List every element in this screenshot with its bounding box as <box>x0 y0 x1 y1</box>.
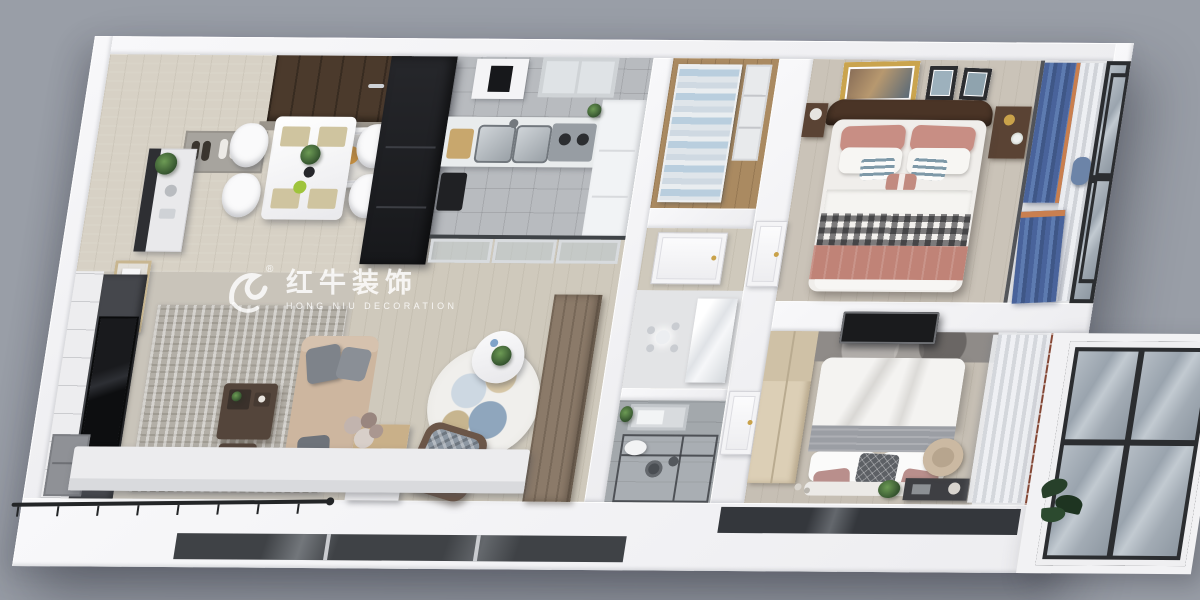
blanket-fold <box>813 279 956 290</box>
glass-bar <box>672 437 684 501</box>
kitchen-counter <box>441 117 603 168</box>
wall-art-small <box>925 66 958 100</box>
room-entry-dining <box>76 54 400 273</box>
slipper <box>218 139 229 159</box>
railing-bar <box>11 499 334 506</box>
placemat <box>307 189 338 209</box>
room-bedroom2 <box>744 331 999 505</box>
sink-basin <box>473 125 517 163</box>
vanity-unit <box>685 298 738 382</box>
gold-lamp <box>1003 114 1016 125</box>
pink-blanket <box>809 245 968 280</box>
sofa-pillow <box>306 343 342 385</box>
art-canvas <box>931 71 953 95</box>
art-canvas <box>847 68 913 99</box>
shelf-line <box>744 95 766 97</box>
railing-post <box>216 505 219 515</box>
curtain-trim <box>1021 210 1066 218</box>
railing-post <box>136 505 139 515</box>
slipper <box>200 141 211 161</box>
railing-post <box>296 504 299 514</box>
gingham-throw <box>816 213 971 246</box>
flower-sprig <box>1010 133 1024 145</box>
railing-post <box>176 505 179 515</box>
desk <box>902 478 969 500</box>
sheet-band <box>823 189 973 214</box>
table-lamp <box>809 108 823 120</box>
bloom <box>368 424 384 438</box>
window-bench <box>68 446 530 493</box>
small-appliance <box>436 173 468 211</box>
railing-knob <box>326 497 335 505</box>
wall-appliance <box>471 59 529 99</box>
cabinet-seam <box>376 206 426 208</box>
corridor-door-open <box>650 232 728 284</box>
door-handle <box>747 420 753 425</box>
monstera-leaf <box>1041 506 1066 523</box>
chandelier-bulb <box>670 344 679 352</box>
cabinet-seam <box>599 150 635 152</box>
balcony-railing <box>10 497 335 516</box>
placemat <box>280 126 311 146</box>
chandelier-bulb <box>646 344 655 352</box>
table-tray <box>303 167 316 178</box>
skylight-light <box>636 410 664 424</box>
room-kitchen <box>430 57 654 238</box>
desk-books <box>911 484 931 494</box>
room-master-bedroom <box>776 59 1042 303</box>
flower-centerpiece <box>299 145 322 165</box>
railing-post <box>56 506 59 516</box>
window-mullion <box>323 534 331 560</box>
glass-panel <box>428 239 494 263</box>
appliance-screen <box>487 66 513 92</box>
cabinet-seam <box>592 196 628 198</box>
dining-chair <box>219 173 264 217</box>
coffee-table <box>216 383 279 439</box>
room-bath-shower <box>604 400 726 503</box>
crystal-chandelier <box>643 320 682 354</box>
sideboard <box>133 148 197 251</box>
railing-post <box>96 506 99 516</box>
apartment-slab <box>12 36 1134 573</box>
sliding-glass-door <box>425 235 625 266</box>
nightstand-left <box>801 103 828 137</box>
dining-table <box>260 116 357 220</box>
kitchen-window <box>537 57 619 98</box>
door-handle <box>368 84 385 88</box>
bedroom2-window-sill <box>717 507 1021 535</box>
sink-basin <box>511 125 553 163</box>
shelf-line <box>739 127 761 129</box>
placemat <box>317 127 348 147</box>
window-mullion <box>473 535 481 561</box>
railing-post <box>256 504 259 514</box>
room-bath-vanity <box>622 290 743 389</box>
master-bed <box>807 119 988 292</box>
closet-shelving <box>657 64 743 202</box>
glass-panel <box>555 239 621 263</box>
nightstand-right <box>988 106 1032 158</box>
chandelier-bulb <box>671 322 680 330</box>
decor-bowl <box>164 185 178 197</box>
cooktop <box>547 123 597 161</box>
wall-bath-divider <box>620 388 728 401</box>
railing-post <box>16 507 19 517</box>
window-glass <box>1065 351 1139 439</box>
window-mullion <box>573 57 582 97</box>
skylight-panel <box>627 404 689 430</box>
window-glass <box>1131 352 1200 440</box>
chandelier-bulb <box>646 326 655 334</box>
door-handle <box>773 252 779 257</box>
dining-chair <box>227 123 272 167</box>
green-dish <box>292 181 307 194</box>
decor-item <box>158 209 176 219</box>
cabinet-seam <box>385 146 435 148</box>
table-plant <box>488 344 514 368</box>
door-handle <box>711 256 717 261</box>
monstera-plant <box>1032 473 1097 533</box>
south-window-glass <box>173 533 627 562</box>
chandelier-core <box>655 330 671 344</box>
floor-bottle <box>794 483 802 490</box>
apartment-render-scene: ® 红牛装饰 HONG NIU DECORATION <box>0 0 1200 600</box>
desk-lamp <box>947 482 961 494</box>
wall-closet-south <box>647 208 756 229</box>
black-ceiling-light <box>839 312 940 345</box>
glass-panel <box>491 239 557 263</box>
art-canvas <box>964 73 986 96</box>
wall-art-small <box>959 68 993 101</box>
cutting-board <box>446 129 475 159</box>
white-duvet <box>812 357 967 428</box>
window-glass <box>1113 446 1194 556</box>
